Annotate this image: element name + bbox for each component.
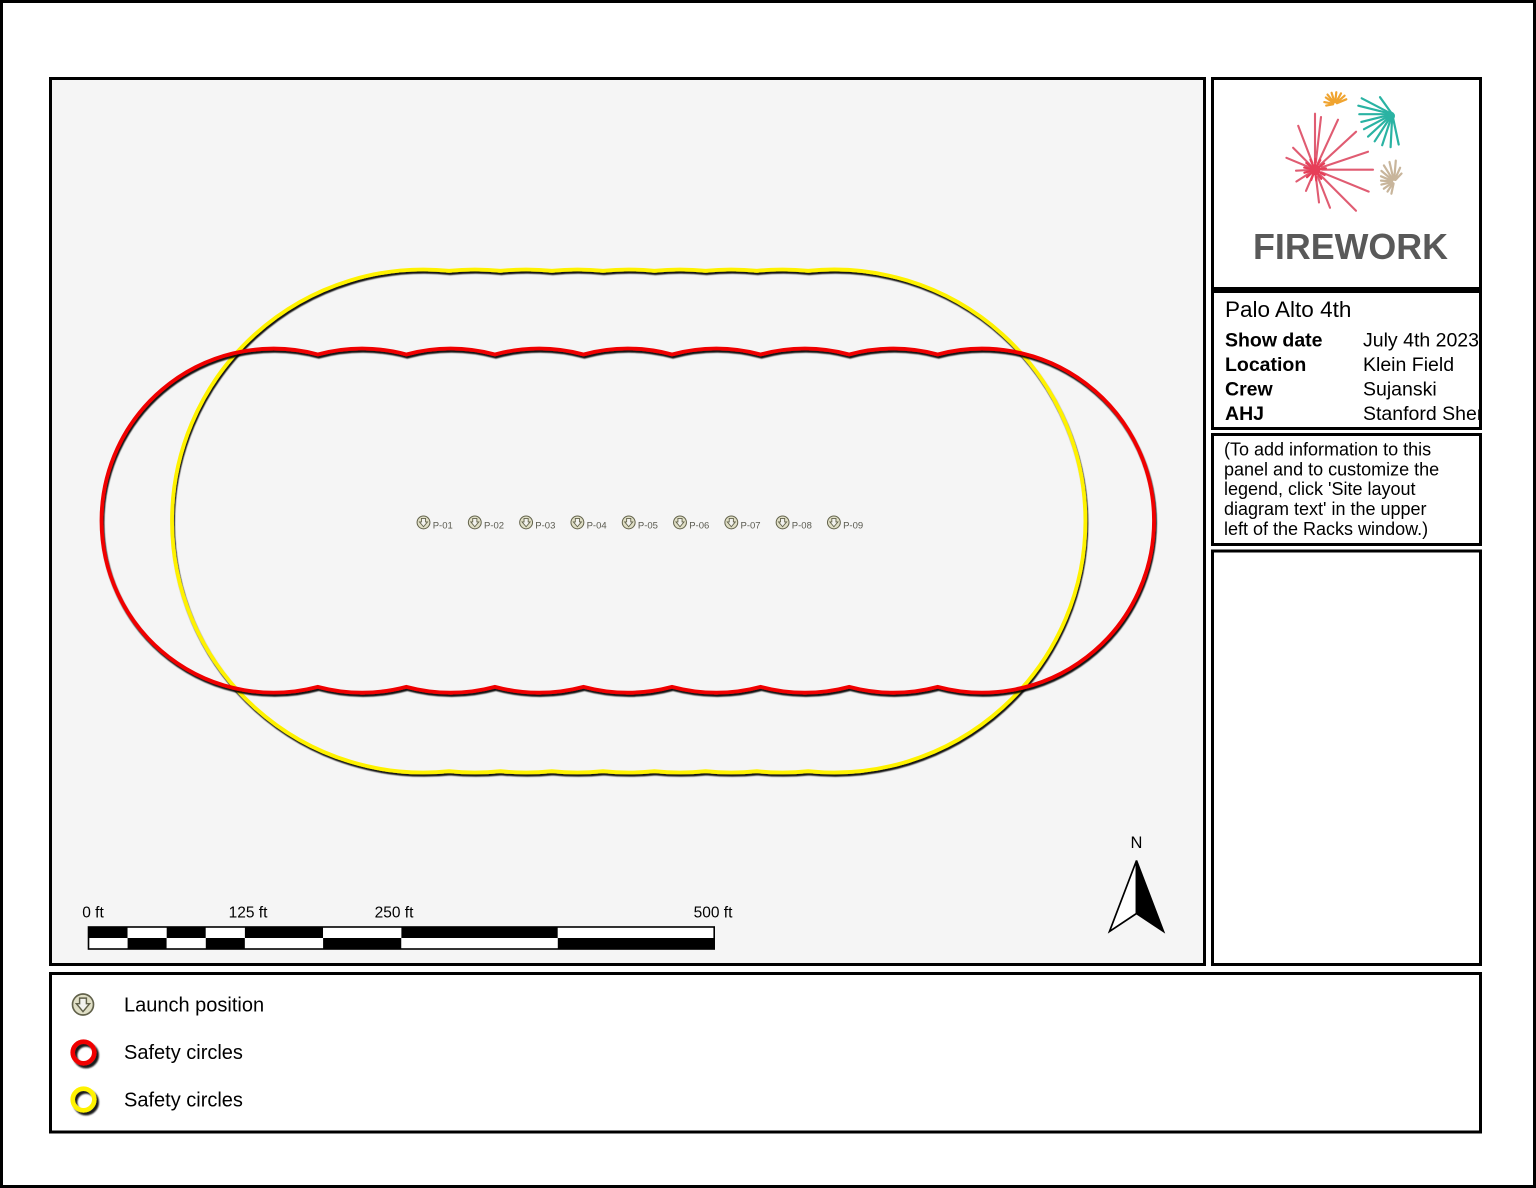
svg-text:panel and to customize the: panel and to customize the [1224,459,1439,479]
svg-text:Show date: Show date [1225,330,1323,352]
svg-text:P-08: P-08 [792,520,812,531]
svg-text:Sujanski: Sujanski [1363,379,1437,401]
svg-text:FIREWORK: FIREWORK [1253,226,1448,267]
svg-text:P-06: P-06 [689,520,709,531]
svg-text:legend, click 'Site layout: legend, click 'Site layout [1224,479,1416,499]
svg-text:250 ft: 250 ft [375,905,414,922]
svg-text:July 4th 2023: July 4th 2023 [1363,330,1479,352]
svg-text:P-04: P-04 [587,520,607,531]
svg-text:500 ft: 500 ft [694,905,733,922]
svg-text:N: N [1131,834,1143,852]
svg-text:Safety circles: Safety circles [124,1090,243,1112]
svg-text:P-03: P-03 [535,520,555,531]
svg-text:Launch position: Launch position [124,995,264,1017]
svg-text:Crew: Crew [1225,379,1274,401]
svg-text:Location: Location [1225,354,1306,376]
svg-text:AHJ: AHJ [1225,403,1264,425]
svg-text:P-05: P-05 [638,520,658,531]
svg-text:125 ft: 125 ft [229,905,268,922]
svg-text:Klein Field: Klein Field [1363,354,1454,376]
svg-text:Palo Alto 4th: Palo Alto 4th [1225,297,1351,322]
svg-text:Safety circles: Safety circles [124,1042,243,1064]
svg-text:diagram text' in the upper: diagram text' in the upper [1224,499,1427,519]
svg-text:Stanford Sheriff: Stanford Sheriff [1363,403,1499,425]
svg-text:left of the Racks window.): left of the Racks window.) [1224,519,1428,539]
svg-text:P-01: P-01 [433,520,453,531]
svg-text:P-07: P-07 [741,520,761,531]
svg-text:P-09: P-09 [843,520,863,531]
svg-text:(To add information to this: (To add information to this [1224,440,1431,460]
svg-text:0 ft: 0 ft [82,905,104,922]
svg-text:P-02: P-02 [484,520,504,531]
